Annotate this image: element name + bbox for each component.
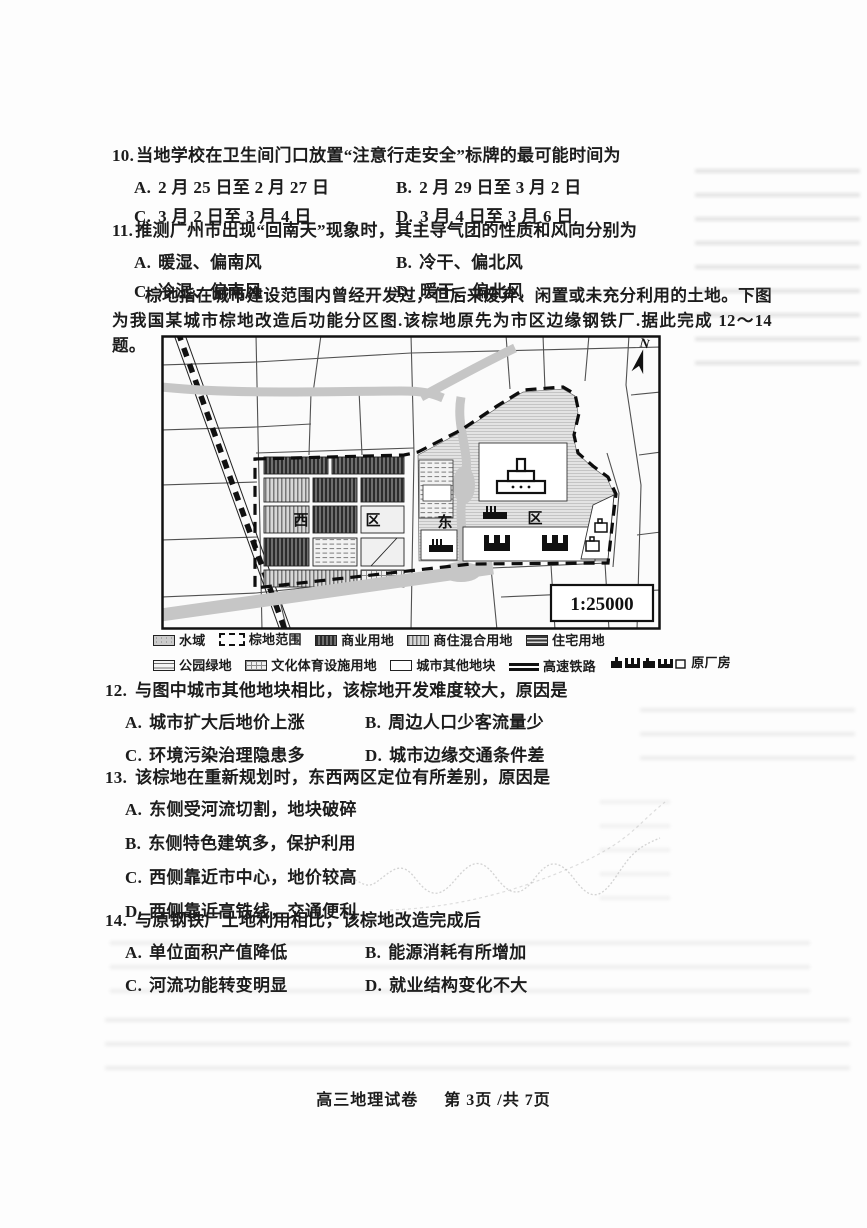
commercial-swatch: [315, 635, 337, 646]
legend-row-2: 公园绿地 文化体育设施用地 城市其他地块 高速铁路 原厂房: [153, 653, 753, 676]
factory-icon: [542, 535, 568, 551]
west-district-label: 区: [365, 512, 380, 529]
culture-sports-swatch: [245, 660, 267, 671]
option-a: A.城市扩大后地价上涨: [125, 708, 365, 733]
question-12: 12.与图中城市其他地块相比，该棕地开发难度较大，原因是 A.城市扩大后地价上涨…: [105, 676, 568, 766]
question-13-stem: 13.该棕地在重新规划时，东西两区定位有所差别，原因是: [105, 763, 550, 788]
exam-title: 高三地理试卷: [316, 1092, 418, 1109]
legend-item-brownfield: 棕地范围: [219, 630, 302, 649]
question-13-options: A.东侧受河流切割，地块破碎 B.东侧特色建筑多，保护利用 C.西侧靠近市中心，…: [125, 795, 550, 922]
page-footer: 高三地理试卷第 3页 /共 7页: [0, 1086, 867, 1110]
question-13: 13.该棕地在重新规划时，东西两区定位有所差别，原因是 A.东侧受河流切割，地块…: [105, 763, 550, 922]
former-factory-icons: [609, 655, 687, 671]
option-a: A.2 月 25 日至 2 月 27 日: [134, 173, 396, 198]
option-a: A.单位面积产值降低: [125, 938, 365, 963]
residential-swatch: [526, 635, 548, 646]
page-number: 第 3页 /共 7页: [444, 1092, 550, 1109]
bleedthrough-bottom-2: [105, 1000, 850, 1070]
legend-item-water: 水域: [153, 631, 205, 650]
city-map: 西 区 东 区 N 1:25000: [161, 335, 661, 630]
option-b: B.冷干、偏北风: [396, 248, 637, 273]
option-b: B.东侧特色建筑多，保护利用: [125, 829, 550, 854]
option-b: B.能源消耗有所增加: [365, 938, 528, 963]
park-swatch: [153, 660, 175, 671]
question-10: 10.当地学校在卫生间门口放置“注意行走安全”标牌的最可能时间为 A.2 月 2…: [112, 141, 621, 227]
mixed-use-swatch: [407, 635, 429, 646]
question-10-stem: 10.当地学校在卫生间门口放置“注意行走安全”标牌的最可能时间为: [112, 141, 621, 166]
legend-item-mixed: 商住混合用地: [407, 631, 512, 650]
factory-icon: [484, 535, 510, 551]
question-12-stem: 12.与图中城市其他地块相比，该棕地开发难度较大，原因是: [105, 676, 568, 701]
option-b: B.周边人口少客流量少: [365, 708, 568, 733]
question-14-options: A.单位面积产值降低 B.能源消耗有所增加 C.河流功能转变明显 D.就业结构变…: [125, 938, 528, 996]
question-number: 10.: [112, 146, 134, 165]
option-b: B.2 月 29 日至 3 月 2 日: [396, 173, 621, 198]
map-legend: 水域 棕地范围 商业用地 商住混合用地 住宅用地 公园绿地 文化体育设施用地 城…: [153, 630, 753, 678]
scale-label: 1:25000: [570, 594, 633, 615]
scale-box: 1:25000: [551, 585, 653, 621]
legend-item-park: 公园绿地: [153, 656, 232, 675]
legend-item-factory: 原厂房: [609, 653, 731, 672]
legend-item-culture: 文化体育设施用地: [245, 656, 377, 675]
option-a: A.东侧受河流切割，地块破碎: [125, 795, 550, 820]
high-speed-rail-icon: [509, 663, 539, 671]
water-swatch: [153, 635, 175, 646]
legend-item-rail: 高速铁路: [509, 657, 596, 676]
east-district-label: 东: [437, 513, 452, 531]
legend-item-other: 城市其他地块: [390, 656, 495, 675]
option-d: D.就业结构变化不大: [365, 971, 528, 996]
question-11-stem: 11.推测广州市出现“回南天”现象时，其主导气团的性质和风向分别为: [112, 216, 637, 241]
option-c: C.河流功能转变明显: [125, 971, 365, 996]
legend-item-commercial: 商业用地: [315, 631, 394, 650]
bleedthrough-right-mid: [640, 688, 855, 760]
option-c: C.西侧靠近市中心，地价较高: [125, 863, 550, 888]
bleedthrough-axis: [600, 790, 670, 900]
legend-item-residential: 住宅用地: [526, 631, 605, 650]
east-district-label: 区: [527, 510, 542, 527]
legend-row-1: 水域 棕地范围 商业用地 商住混合用地 住宅用地: [153, 630, 753, 651]
question-14: 14.与原钢铁厂土地利用相比，该棕地改造完成后 A.单位面积产值降低 B.能源消…: [105, 906, 528, 996]
exam-page: 10.当地学校在卫生间门口放置“注意行走安全”标牌的最可能时间为 A.2 月 2…: [0, 0, 867, 1228]
question-text: 当地学校在卫生间门口放置“注意行走安全”标牌的最可能时间为: [136, 146, 621, 165]
west-district-label: 西: [293, 512, 308, 529]
question-14-stem: 14.与原钢铁厂土地利用相比，该棕地改造完成后: [105, 906, 528, 931]
other-land-swatch: [390, 660, 412, 671]
brownfield-boundary-swatch: [219, 633, 245, 646]
map-figure: 西 区 东 区 N 1:25000: [161, 335, 661, 630]
question-12-options: A.城市扩大后地价上涨 B.周边人口少客流量少 C.环境污染治理隐患多 D.城市…: [125, 708, 568, 766]
option-a: A.暖湿、偏南风: [134, 248, 396, 273]
